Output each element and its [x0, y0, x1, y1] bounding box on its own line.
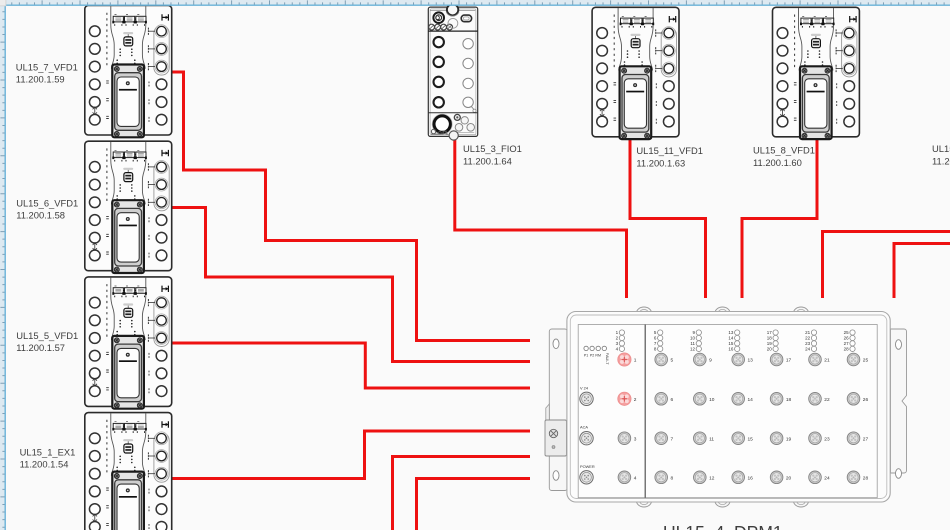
svg-text:18: 18 [786, 397, 792, 403]
svg-text:FAULT: FAULT [605, 353, 610, 365]
svg-text:11: 11 [709, 436, 714, 442]
svg-text:11.200.1.58: 11.200.1.58 [16, 210, 65, 221]
svg-text:UL15_9_VFD1: UL15_9_VFD1 [932, 143, 950, 154]
svg-text:25: 25 [844, 330, 850, 335]
svg-text:11: 11 [690, 341, 695, 346]
svg-text:11.200.1.54: 11.200.1.54 [20, 458, 69, 469]
svg-text:10: 10 [690, 336, 696, 341]
svg-text:UL15_3_FIO1: UL15_3_FIO1 [463, 143, 522, 154]
svg-text:UL15_11_VFD1: UL15_11_VFD1 [636, 145, 703, 156]
svg-text:UL15_5_VFD1: UL15_5_VFD1 [16, 330, 78, 341]
svg-text:23: 23 [805, 341, 811, 346]
svg-text:11.200.1.57: 11.200.1.57 [16, 342, 65, 353]
svg-text:10: 10 [709, 397, 715, 403]
svg-text:15: 15 [728, 341, 734, 346]
svg-text:23: 23 [824, 436, 830, 442]
svg-text:11.200.1.64: 11.200.1.64 [463, 155, 512, 166]
svg-text:V 24: V 24 [580, 385, 589, 390]
svg-text:26: 26 [863, 397, 869, 403]
svg-text:4: 4 [634, 476, 637, 482]
svg-text:14: 14 [748, 397, 754, 403]
svg-text:17: 17 [767, 330, 773, 335]
svg-text:7: 7 [671, 436, 674, 442]
svg-text:19: 19 [786, 436, 792, 442]
svg-text:9: 9 [709, 358, 712, 364]
svg-text:20: 20 [786, 476, 792, 482]
svg-text:ACA: ACA [580, 425, 588, 430]
svg-text:1: 1 [634, 358, 637, 364]
svg-text:27: 27 [844, 341, 850, 346]
svg-text:21: 21 [824, 358, 830, 364]
svg-text:13: 13 [728, 330, 734, 335]
svg-text:16: 16 [728, 347, 734, 352]
svg-text:UL15_4_DPM1: UL15_4_DPM1 [663, 522, 783, 530]
svg-text:28: 28 [844, 347, 850, 352]
svg-text:11.200.1.63: 11.200.1.63 [636, 158, 685, 169]
svg-text:12: 12 [709, 476, 715, 482]
svg-text:6: 6 [671, 397, 674, 403]
svg-text:17: 17 [786, 358, 792, 364]
svg-text:2: 2 [634, 397, 637, 403]
svg-text:UL15_6_VFD1: UL15_6_VFD1 [16, 198, 78, 209]
svg-text:18: 18 [767, 336, 773, 341]
svg-text:21: 21 [805, 330, 811, 335]
svg-text:24: 24 [824, 476, 830, 482]
svg-text:11.200.1.61: 11.200.1.61 [932, 155, 950, 166]
svg-text:UL15_7_VFD1: UL15_7_VFD1 [16, 62, 78, 73]
svg-text:24: 24 [805, 347, 811, 352]
svg-text:5: 5 [671, 358, 674, 364]
svg-text:POWER: POWER [580, 464, 595, 469]
svg-text:12: 12 [690, 347, 696, 352]
svg-text:22: 22 [824, 397, 830, 403]
svg-text:UL15_8_VFD1: UL15_8_VFD1 [753, 144, 815, 155]
svg-text:RM: RM [595, 354, 601, 358]
svg-text:P2: P2 [590, 354, 594, 358]
svg-text:13: 13 [748, 358, 754, 364]
svg-text:26: 26 [844, 336, 850, 341]
svg-text:16: 16 [748, 476, 754, 482]
svg-text:UL15_1_EX1: UL15_1_EX1 [20, 446, 76, 457]
svg-text:11.200.1.59: 11.200.1.59 [16, 74, 65, 85]
svg-text:14: 14 [728, 336, 734, 341]
svg-text:19: 19 [767, 341, 773, 346]
svg-text:20: 20 [767, 347, 773, 352]
svg-text:28: 28 [863, 476, 869, 482]
svg-text:3: 3 [634, 436, 637, 442]
svg-text:27: 27 [863, 436, 869, 442]
svg-text:15: 15 [748, 436, 754, 442]
svg-text:22: 22 [805, 336, 811, 341]
svg-text:25: 25 [863, 358, 869, 364]
svg-text:11.200.1.60: 11.200.1.60 [753, 157, 802, 168]
svg-text:8: 8 [671, 476, 674, 482]
svg-text:P1: P1 [584, 354, 588, 358]
